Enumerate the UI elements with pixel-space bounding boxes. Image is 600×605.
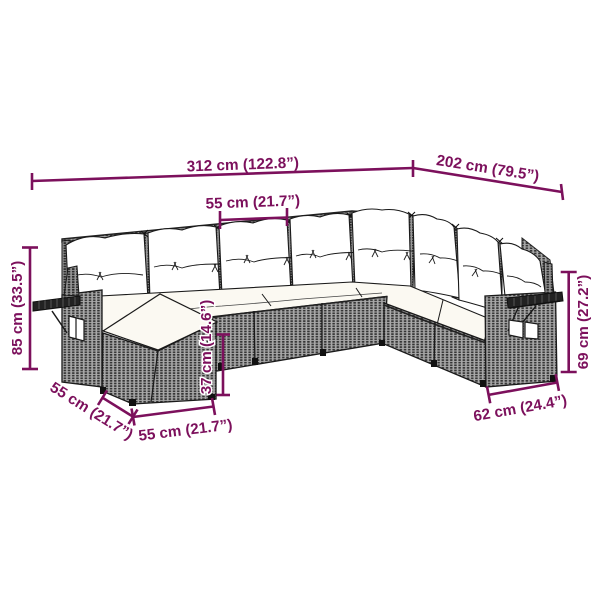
svg-text:85 cm (33.5”): 85 cm (33.5”)	[9, 261, 26, 356]
svg-text:55 cm (21.7”): 55 cm (21.7”)	[205, 192, 300, 212]
svg-text:69 cm (27.2”): 69 cm (27.2”)	[575, 275, 592, 370]
svg-text:37 cm (14.6”): 37 cm (14.6”)	[198, 300, 215, 395]
